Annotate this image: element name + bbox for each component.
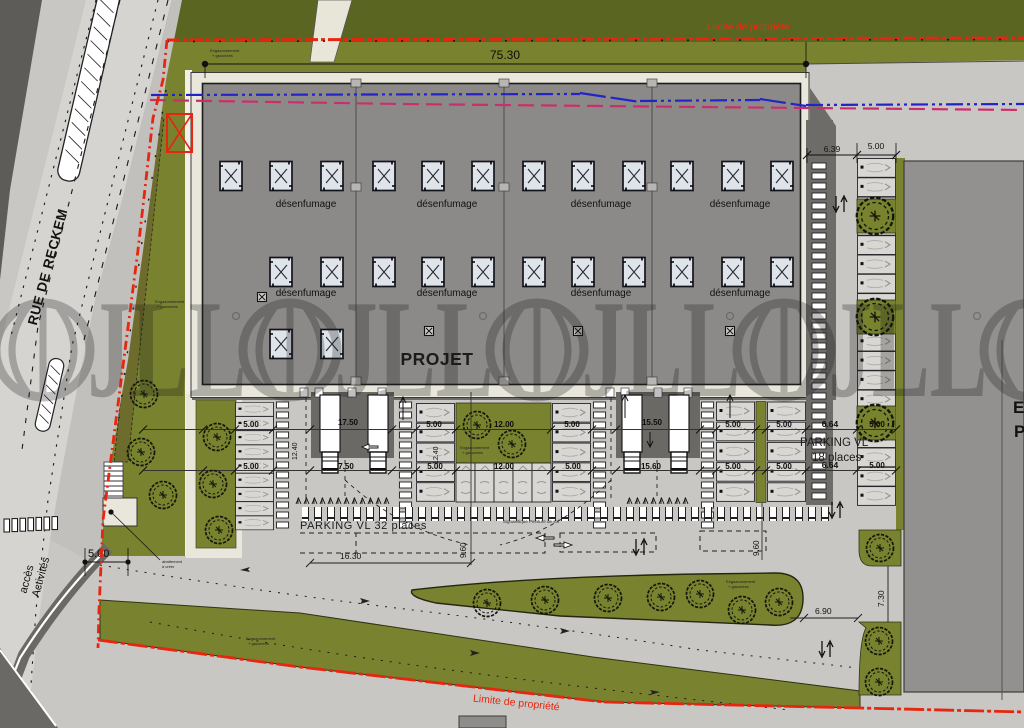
svg-text:désenfumage: désenfumage [571, 199, 632, 210]
svg-text:désenfumage: désenfumage [710, 199, 771, 210]
svg-text:12.40: 12.40 [433, 446, 440, 464]
svg-text:6.39: 6.39 [824, 144, 841, 154]
svg-text:6.64: 6.64 [822, 460, 839, 470]
svg-text:15.60: 15.60 [641, 462, 662, 471]
svg-text:12.40: 12.40 [292, 442, 299, 460]
svg-text:+ gazonées: + gazonées [728, 584, 749, 589]
svg-text:+ gazonées: + gazonées [248, 641, 269, 646]
svg-text:JLL: JLL [334, 272, 493, 427]
svg-text:5.00: 5.00 [869, 461, 885, 470]
svg-text:12.00: 12.00 [494, 462, 515, 471]
svg-text:9.60: 9.60 [459, 542, 468, 558]
svg-text:5.00: 5.00 [776, 462, 792, 471]
svg-text:PARKING VL: PARKING VL [800, 437, 869, 449]
svg-text:+ gazonées: + gazonées [462, 450, 483, 455]
svg-text:9.60: 9.60 [752, 540, 761, 556]
svg-text:JLL: JLL [828, 272, 987, 427]
svg-text:5.00: 5.00 [725, 462, 741, 471]
svg-text:JLL: JLL [87, 272, 246, 427]
svg-text:5.00: 5.00 [88, 548, 109, 560]
svg-text:JLL: JLL [581, 272, 740, 427]
svg-text:E: E [1013, 398, 1024, 417]
svg-text:+ gazonées: + gazonées [212, 53, 233, 58]
svg-text:désenfumage: désenfumage [276, 199, 337, 210]
svg-text:Limite de propriété: Limite de propriété [707, 22, 790, 33]
svg-text:désenfumage: désenfumage [276, 288, 337, 299]
svg-text:75.30: 75.30 [490, 48, 520, 62]
svg-text:16.30: 16.30 [340, 551, 362, 561]
svg-text:PARKING VL 32 places: PARKING VL 32 places [300, 520, 427, 532]
svg-text:5.00: 5.00 [776, 420, 792, 429]
svg-text:7.30: 7.30 [876, 590, 886, 607]
svg-text:5.00: 5.00 [243, 462, 259, 471]
svg-text:12.00: 12.00 [494, 420, 515, 429]
svg-text:à créer: à créer [162, 564, 175, 569]
svg-text:5.00: 5.00 [868, 141, 885, 151]
svg-text:6.90: 6.90 [815, 606, 832, 616]
svg-text:Signalétique Peinture de sol: Signalétique Peinture de sol [503, 519, 559, 524]
svg-text:5.00: 5.00 [564, 420, 580, 429]
svg-text:7.50: 7.50 [338, 462, 354, 471]
svg-text:5.00: 5.00 [565, 462, 581, 471]
svg-text:P: P [1014, 422, 1024, 441]
svg-text:désenfumage: désenfumage [417, 199, 478, 210]
